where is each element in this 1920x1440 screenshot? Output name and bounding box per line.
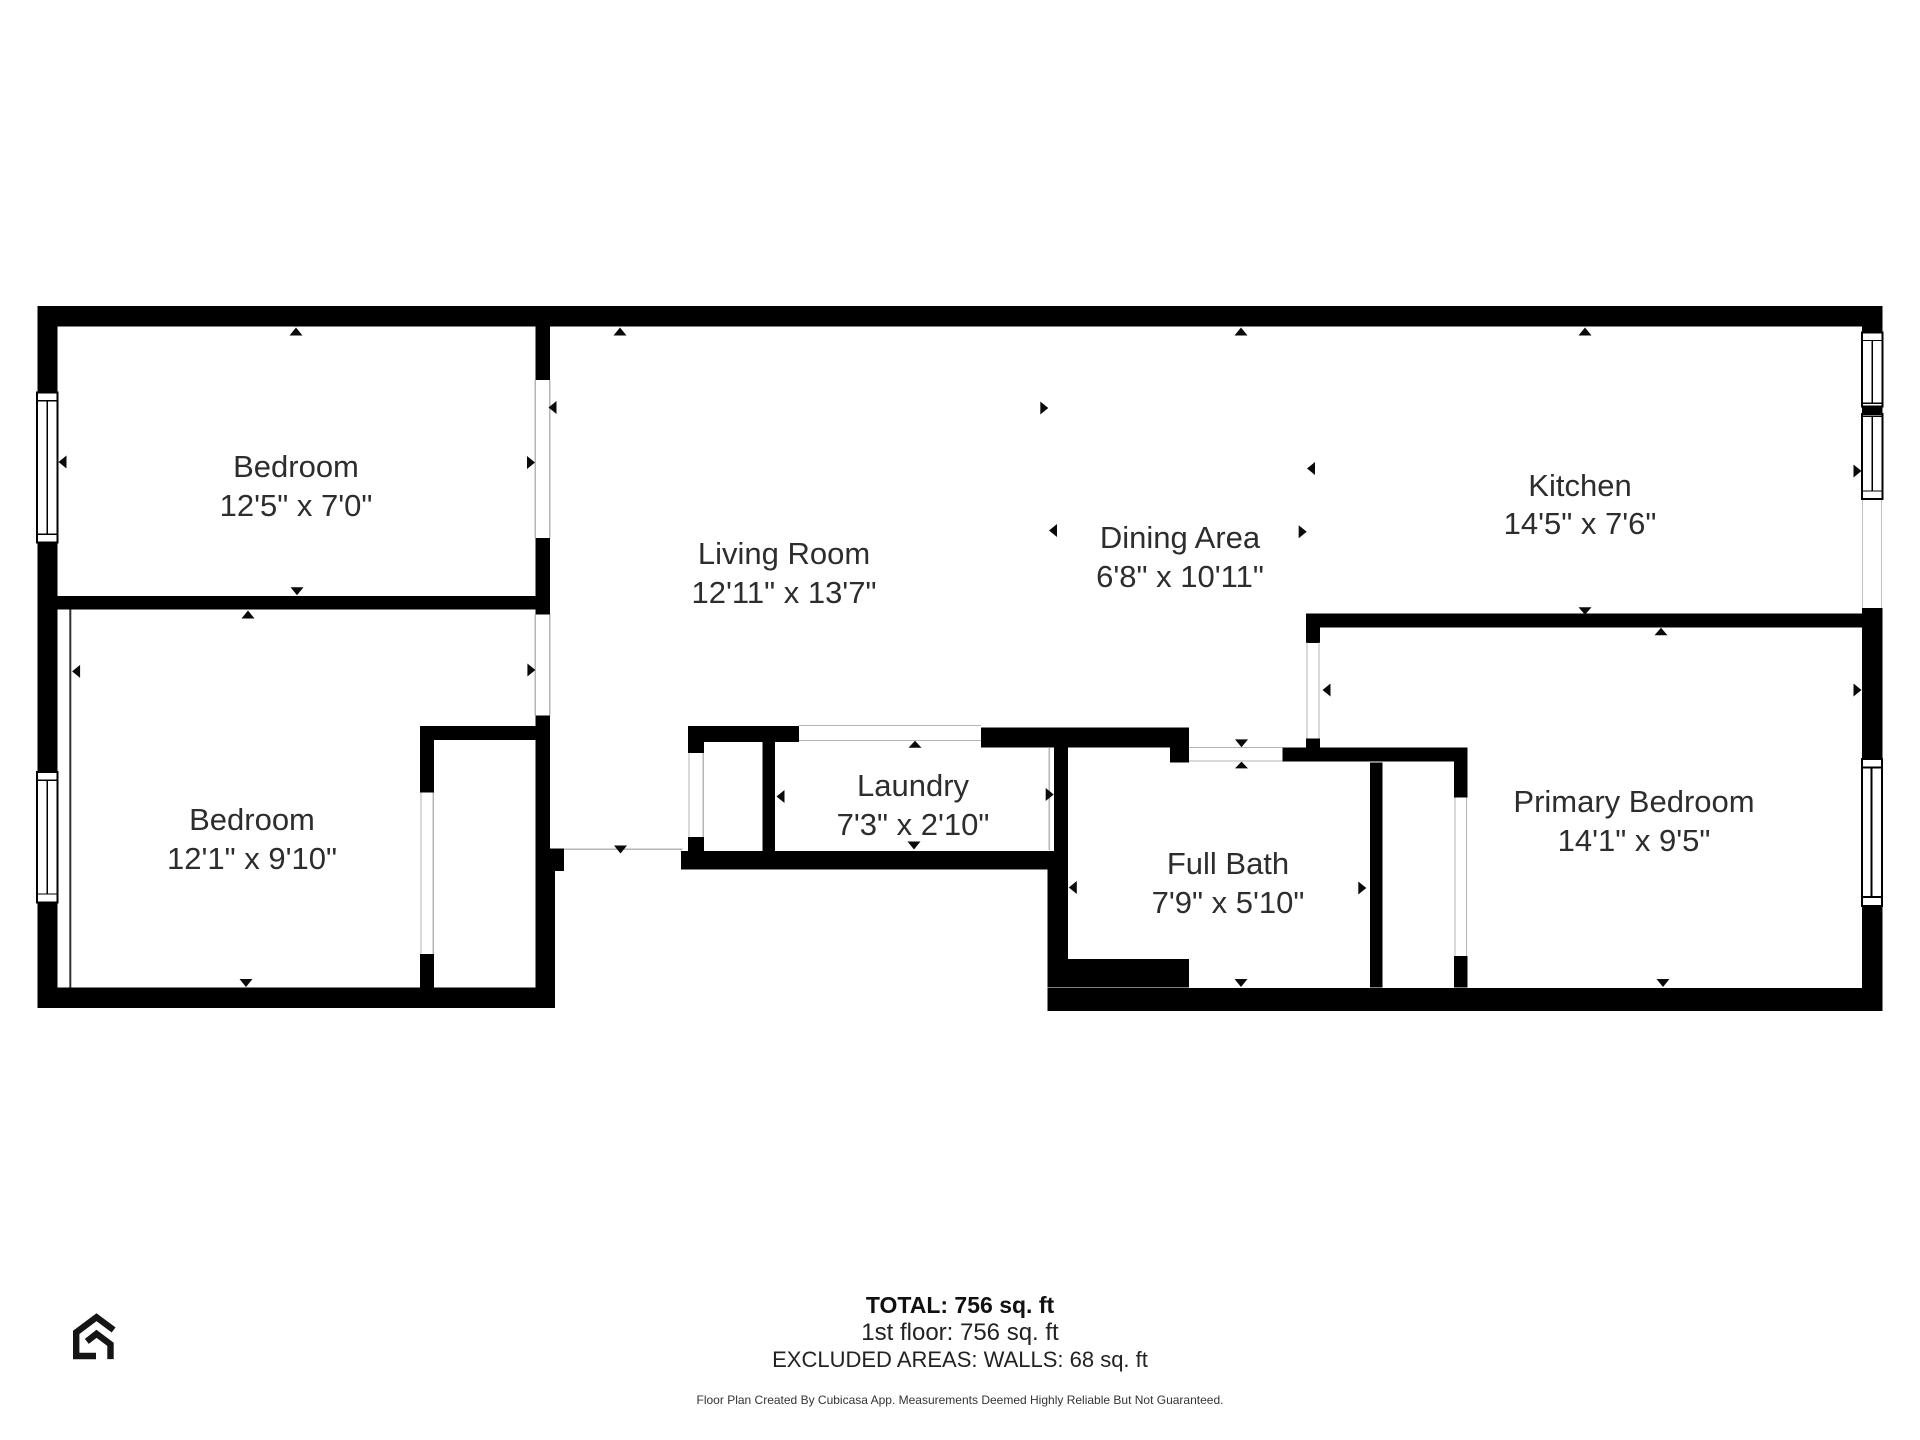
svg-text:1st floor: 756 sq. ft: 1st floor: 756 sq. ft	[861, 1319, 1059, 1346]
svg-text:Bedroom: Bedroom	[189, 802, 315, 837]
svg-text:Primary Bedroom: Primary Bedroom	[1513, 784, 1754, 819]
svg-text:12'1" x 9'10": 12'1" x 9'10"	[167, 841, 337, 876]
svg-text:7'9" x 5'10": 7'9" x 5'10"	[1152, 885, 1305, 920]
svg-text:12'5" x 7'0": 12'5" x 7'0"	[220, 488, 373, 523]
svg-text:Dining Area: Dining Area	[1100, 520, 1261, 555]
svg-text:14'5" x 7'6": 14'5" x 7'6"	[1504, 506, 1657, 541]
svg-text:14'1" x 9'5": 14'1" x 9'5"	[1558, 823, 1711, 858]
svg-text:6'8" x 10'11": 6'8" x 10'11"	[1096, 559, 1264, 594]
svg-text:EXCLUDED AREAS: WALLS: 68 sq.: EXCLUDED AREAS: WALLS: 68 sq. ft	[772, 1347, 1148, 1372]
svg-text:Living Room: Living Room	[698, 536, 870, 571]
svg-text:Kitchen: Kitchen	[1528, 468, 1631, 503]
svg-text:12'11" x 13'7": 12'11" x 13'7"	[692, 575, 877, 610]
svg-text:Laundry: Laundry	[857, 768, 970, 803]
svg-text:7'3" x 2'10": 7'3" x 2'10"	[837, 807, 990, 842]
svg-text:TOTAL: 756 sq. ft: TOTAL: 756 sq. ft	[866, 1292, 1055, 1318]
svg-text:Full Bath: Full Bath	[1167, 846, 1289, 881]
svg-text:Bedroom: Bedroom	[233, 449, 359, 484]
svg-text:Floor Plan Created By Cubicasa: Floor Plan Created By Cubicasa App. Meas…	[697, 1393, 1224, 1407]
